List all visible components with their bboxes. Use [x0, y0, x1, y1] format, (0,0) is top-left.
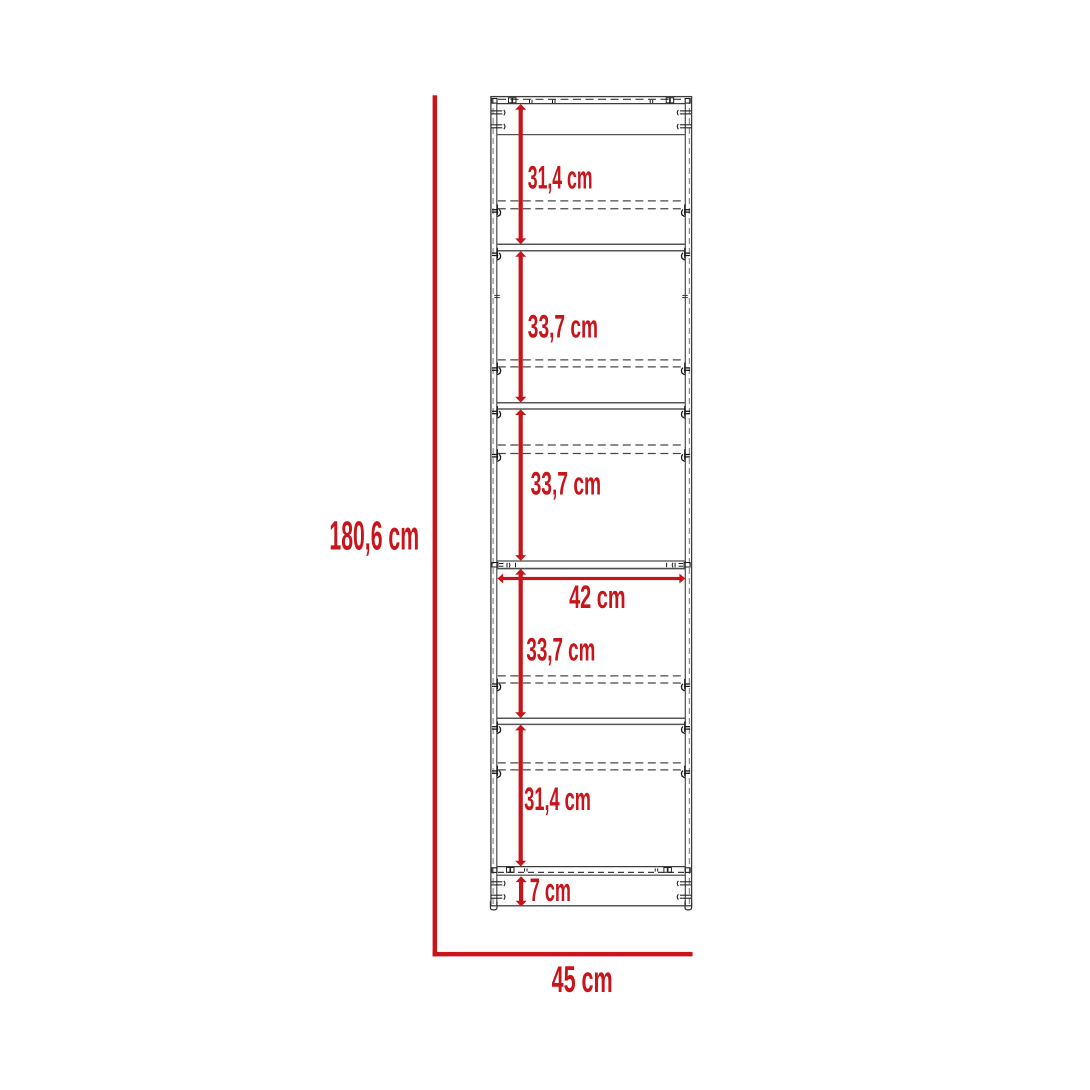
- svg-text:42 cm: 42 cm: [569, 579, 626, 615]
- svg-text:33,7 cm: 33,7 cm: [531, 466, 602, 502]
- svg-text:31,4 cm: 31,4 cm: [528, 159, 593, 195]
- svg-text:31,4 cm: 31,4 cm: [524, 781, 591, 817]
- svg-text:7 cm: 7 cm: [530, 872, 571, 908]
- svg-text:45 cm: 45 cm: [552, 959, 613, 1000]
- svg-text:33,7 cm: 33,7 cm: [528, 308, 598, 344]
- svg-text:180,6 cm: 180,6 cm: [329, 513, 419, 559]
- svg-text:33,7 cm: 33,7 cm: [526, 632, 595, 668]
